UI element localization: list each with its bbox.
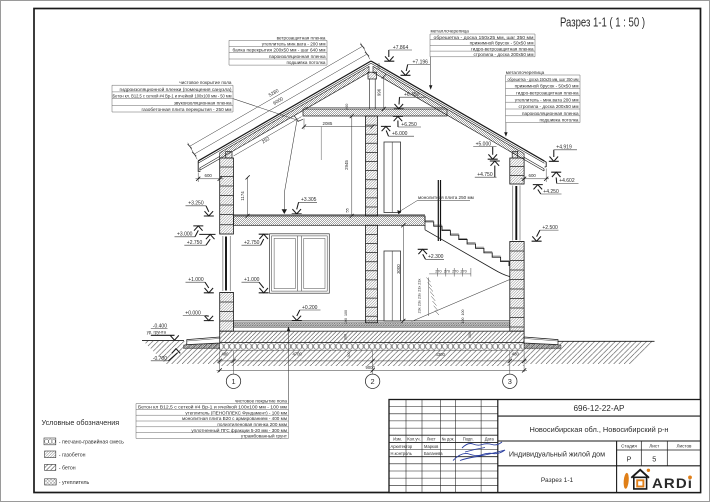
svg-text:Баланева: Баланева <box>424 451 443 456</box>
svg-text:300: 300 <box>347 352 351 358</box>
svg-text:2945: 2945 <box>344 160 349 170</box>
svg-text:утеплитель (ПЕНОПЛЕКС Фундамен: утеплитель (ПЕНОПЛЕКС Фундамент) - 100 м… <box>185 410 287 415</box>
svg-text:480: 480 <box>512 351 520 356</box>
svg-text:газобетонная плита перекрытия: газобетонная плита перекрытия - 250 мм <box>142 107 232 112</box>
svg-text:+1.000: +1.000 <box>188 277 204 283</box>
svg-text:270: 270 <box>444 270 450 274</box>
svg-text:монолитная плита 250 мм: монолитная плита 250 мм <box>418 195 474 200</box>
svg-text:Стадия: Стадия <box>621 444 637 449</box>
svg-text:Разрез 1-1 ( 1 : 50 ): Разрез 1-1 ( 1 : 50 ) <box>560 16 645 30</box>
svg-text:Лист: Лист <box>649 444 660 449</box>
svg-text:270: 270 <box>452 270 458 274</box>
svg-text:звукоизоляционная пленка: звукоизоляционная пленка <box>174 100 232 105</box>
svg-text:+3.305: +3.305 <box>301 197 317 203</box>
svg-text:+4.750: +4.750 <box>477 172 493 178</box>
svg-text:3000: 3000 <box>396 264 401 274</box>
svg-text:4700: 4700 <box>293 351 303 356</box>
svg-text:+2.500: +2.500 <box>542 225 558 231</box>
svg-text:400: 400 <box>468 332 472 338</box>
svg-text:+6.450: +6.450 <box>404 92 420 98</box>
svg-text:стропила - доска 200х50 мм: стропила - доска 200х50 мм <box>518 104 578 109</box>
svg-text:гидроизоляционной пленки (поме: гидроизоляционной пленки (помещения сану… <box>120 86 232 92</box>
svg-text:200: 200 <box>345 104 349 110</box>
svg-text:+4.919: +4.919 <box>556 145 572 151</box>
svg-text:металлочерепица: металлочерепица <box>431 29 470 34</box>
svg-text:- утеплитель: - утеплитель <box>59 480 90 486</box>
svg-text:Листов: Листов <box>677 444 692 449</box>
svg-text:300: 300 <box>344 334 348 340</box>
svg-text:+4.602: +4.602 <box>559 178 575 184</box>
svg-text:уплотненный ПГС фракции 5-20 м: уплотненный ПГС фракции 5-20 мм - 300 мм <box>191 427 287 433</box>
svg-text:1174: 1174 <box>240 191 245 201</box>
svg-text:- газобетон: - газобетон <box>59 452 86 458</box>
svg-text:Р: Р <box>627 455 632 464</box>
svg-text:+0.200: +0.200 <box>302 305 318 311</box>
svg-text:утрамбованный грунт: утрамбованный грунт <box>241 433 288 439</box>
svg-text:Условные обозначения: Условные обозначения <box>42 418 120 427</box>
svg-text:9000: 9000 <box>366 365 376 370</box>
svg-text:гидро-ветрозащитная пленка: гидро-ветрозащитная пленка <box>471 46 534 51</box>
svg-text:270: 270 <box>435 270 441 274</box>
svg-text:утеплитель мин.вата - 200 мм: утеплитель мин.вата - 200 мм <box>262 42 326 47</box>
svg-text:+6.000: +6.000 <box>392 131 408 137</box>
svg-text:стропила - доска 200х50 мм: стропила - доска 200х50 мм <box>473 52 533 57</box>
svg-text:100: 100 <box>344 310 348 316</box>
svg-text:100: 100 <box>461 318 465 324</box>
svg-text:пароизоляционная пленка: пароизоляционная пленка <box>269 54 326 59</box>
svg-text:балка перекрытия 200х50 мм - ш: балка перекрытия 200х50 мм - шаг 640 мм <box>233 48 326 53</box>
svg-text:+7.196: +7.196 <box>413 59 429 65</box>
svg-text:гидро-ветрозащитная пленка: гидро-ветрозащитная пленка <box>516 91 579 96</box>
svg-text:-0.400: -0.400 <box>153 323 167 329</box>
svg-text:23х 23х 23х 23х 23х: 23х 23х 23х 23х 23х <box>418 278 422 313</box>
svg-text:+1.000: +1.000 <box>244 277 260 283</box>
svg-text:+2.300: +2.300 <box>428 254 444 260</box>
svg-text:прижимной брусок - 50х50 мм: прижимной брусок - 50х50 мм <box>470 40 534 46</box>
svg-text:- бетон: - бетон <box>59 465 76 471</box>
svg-text:Архитектор: Архитектор <box>391 444 413 449</box>
svg-text:обрешетка - доска 150х25 мм, ш: обрешетка - доска 150х25 мм, шаг 350 мм <box>434 35 534 40</box>
svg-text:Н.контроль: Н.контроль <box>391 451 412 456</box>
svg-text:Новосибирская обл., Новосибирс: Новосибирская обл., Новосибирский р-н <box>529 425 668 434</box>
svg-text:ARDi: ARDi <box>652 476 693 491</box>
svg-text:чистовое покрытие пола: чистовое покрытие пола <box>235 398 288 403</box>
svg-text:прижимной брусок - 50х50 мм: прижимной брусок - 50х50 мм <box>515 83 579 89</box>
svg-text:Бетон кл. В12,5 с сеткой #4 Вр: Бетон кл. В12,5 с сеткой #4 Вр-1 и ячейк… <box>113 93 232 99</box>
svg-text:чистовое покрытие пола: чистовое покрытие пола <box>179 80 232 85</box>
svg-text:+3.250: +3.250 <box>188 201 204 207</box>
svg-text:пароизоляционная пленка: пароизоляционная пленка <box>522 111 579 116</box>
svg-text:монолитная плита В20 с армиров: монолитная плита В20 с армированием - 40… <box>182 416 287 421</box>
svg-text:полиэтиленовая пленка 200 мкм: полиэтиленовая пленка 200 мкм <box>217 422 287 427</box>
svg-text:Кол.уч.: Кол.уч. <box>407 437 420 442</box>
svg-text:+0.000: +0.000 <box>185 310 201 316</box>
svg-text:4300: 4300 <box>436 352 446 357</box>
svg-text:+6.250: +6.250 <box>401 122 417 128</box>
svg-text:Бетон кл В12,5 с сеткой #4 Вр-: Бетон кл В12,5 с сеткой #4 Вр-1 и ячейко… <box>138 404 287 410</box>
svg-text:3: 3 <box>508 377 512 386</box>
svg-text:-0.700: -0.700 <box>153 356 167 362</box>
svg-text:Изм.: Изм. <box>393 437 402 442</box>
svg-text:+2.750: +2.750 <box>244 240 260 246</box>
svg-text:Марков: Марков <box>424 444 438 449</box>
svg-text:100: 100 <box>344 318 348 324</box>
svg-text:150: 150 <box>377 63 381 69</box>
svg-text:5: 5 <box>652 455 656 464</box>
svg-text:+4.250: +4.250 <box>543 189 559 195</box>
svg-text:подшивка потолка: подшивка потолка <box>539 118 578 123</box>
svg-text:№ док.: № док. <box>441 437 454 442</box>
svg-text:металлочерепица: металлочерепица <box>506 70 545 75</box>
svg-text:Лист: Лист <box>427 437 436 442</box>
svg-text:996: 996 <box>376 88 381 96</box>
svg-text:утеплитель - мин.вата 200 мм: утеплитель - мин.вата 200 мм <box>515 97 579 102</box>
svg-text:600: 600 <box>529 173 537 178</box>
svg-text:600: 600 <box>205 173 213 178</box>
svg-text:Разрез 1-1: Разрез 1-1 <box>541 477 574 484</box>
svg-text:обрешетка - доска 150х25 мм, ш: обрешетка - доска 150х25 мм, шаг 350 мм <box>508 77 579 82</box>
svg-text:2: 2 <box>371 377 375 386</box>
svg-text:+2.750: +2.750 <box>187 240 203 246</box>
svg-text:1: 1 <box>231 377 235 386</box>
svg-text:Дата: Дата <box>485 437 495 442</box>
svg-text:55: 55 <box>346 208 350 212</box>
svg-text:ветрозащитная пленка: ветрозащитная пленка <box>277 35 326 40</box>
svg-text:480: 480 <box>222 351 230 356</box>
svg-text:Подп.: Подп. <box>463 437 474 442</box>
svg-text:подшивка потолка: подшивка потолка <box>286 60 325 65</box>
svg-text:ур. грунта: ур. грунта <box>147 330 167 335</box>
svg-text:- песчано-гравийная смесь: - песчано-гравийная смесь <box>59 439 124 446</box>
svg-text:+3.000: +3.000 <box>177 232 193 238</box>
svg-text:100: 100 <box>461 310 465 316</box>
svg-text:+5.000: +5.000 <box>476 141 492 147</box>
svg-text:2085: 2085 <box>323 121 333 126</box>
svg-text:+7.864: +7.864 <box>393 45 409 51</box>
svg-text:696-12-22-АР: 696-12-22-АР <box>574 404 626 413</box>
svg-text:270: 270 <box>460 270 466 274</box>
svg-text:Индивидуальный жилой дом: Индивидуальный жилой дом <box>509 449 605 458</box>
